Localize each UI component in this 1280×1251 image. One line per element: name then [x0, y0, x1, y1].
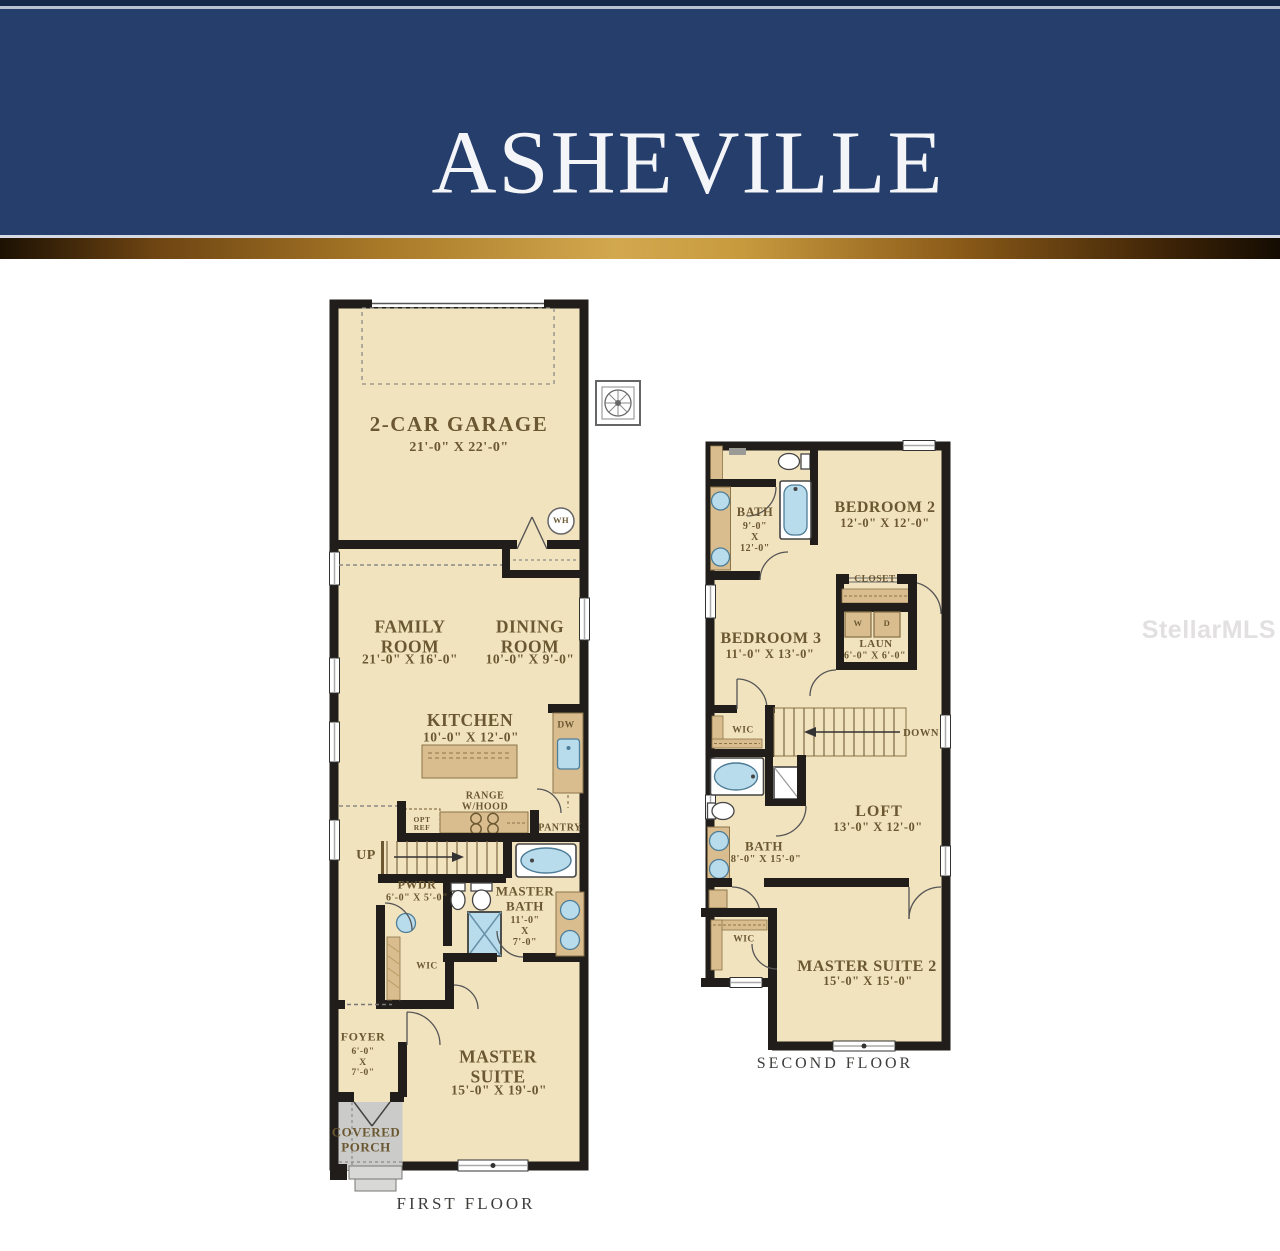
second-floor-caption: SECOND FLOOR	[757, 1055, 913, 1073]
garage-name: 2-CAR GARAGE	[370, 413, 548, 437]
wic-label: WIC	[416, 962, 438, 973]
wic2-label: WIC	[733, 935, 755, 946]
foyer-dims: 6'-0" X 7'-0"	[351, 1047, 374, 1079]
washer-label: W	[854, 619, 863, 629]
laundry-dims: 6'-0" X 6'-0"	[844, 650, 906, 661]
powder-sink-icon	[397, 914, 416, 933]
pantry-label: PANTRY	[538, 822, 582, 833]
kitchen-island	[422, 745, 517, 778]
loft-name: LOFT	[855, 803, 903, 821]
bath2-dims: 8'-0" X 15'-0"	[731, 854, 802, 866]
toilet-icon	[779, 454, 811, 470]
dryer-label: D	[884, 619, 891, 629]
master-suite2-dims: 15'-0" X 15'-0"	[823, 974, 912, 988]
first-floor-caption: FIRST FLOOR	[397, 1194, 536, 1214]
kitchen-sink-icon	[558, 739, 580, 769]
dining-room-dims: 10'-0" X 9'-0"	[486, 651, 575, 666]
porch-name: COVERED PORCH	[332, 1125, 401, 1154]
bedroom3-name: BEDROOM 3	[721, 630, 822, 648]
floor-plan-drawing	[0, 0, 1280, 1251]
foyer-name: FOYER	[341, 1030, 386, 1043]
up-label: UP	[356, 848, 376, 864]
bathtub-icon	[516, 844, 576, 877]
laundry-name: LAUN	[859, 638, 892, 650]
bathtub-icon	[780, 481, 811, 539]
master-suite-dims: 15'-0" X 19'-0"	[451, 1082, 547, 1097]
master-suite-name: MASTER SUITE	[459, 1047, 537, 1086]
closet-shelf	[387, 937, 400, 1000]
bathtub-icon	[711, 758, 764, 795]
kitchen-name: KITCHEN	[427, 711, 513, 731]
wic-hall-label: WIC	[732, 726, 754, 737]
sink-icon	[712, 548, 730, 566]
porch-step	[355, 1179, 396, 1191]
closet-label: CLOSET	[854, 575, 896, 586]
down-label: DOWN	[903, 728, 939, 740]
family-room-dims: 21'-0" X 16'-0"	[362, 651, 458, 666]
mls-watermark: StellarMLS	[1142, 616, 1276, 645]
master-bath-dims: 11'-0" X 7'-0"	[510, 915, 539, 949]
sink-icon	[710, 832, 729, 851]
master-bath-name: MASTER BATH	[496, 884, 555, 913]
kitchen-dims: 10'-0" X 12'-0"	[423, 729, 519, 744]
bath1-name: BATH	[737, 505, 774, 519]
shower-icon	[774, 767, 799, 799]
bedroom2-dims: 12'-0" X 12'-0"	[840, 516, 929, 530]
sink-icon	[561, 931, 580, 950]
water-heater-label: WH	[553, 516, 569, 526]
toilet-icon	[708, 803, 735, 820]
sink-icon	[710, 860, 729, 879]
shower-icon	[468, 912, 501, 956]
loft-dims: 13'-0" X 12'-0"	[833, 820, 922, 834]
ac-unit-icon	[596, 381, 640, 425]
bedroom2-name: BEDROOM 2	[835, 499, 936, 517]
range-label: RANGE W/HOOD	[462, 792, 508, 813]
powder-dims: 6'-0" X 5'-0"	[386, 892, 448, 903]
sink-icon	[712, 492, 730, 510]
garage-dims: 21'-0" X 22'-0"	[409, 440, 508, 456]
dishwasher-label: DW	[557, 721, 574, 732]
closet-shelf	[842, 589, 910, 603]
bath1-dims: 9'-0" X 12'-0"	[740, 521, 770, 555]
sink-icon	[561, 901, 580, 920]
porch-step	[349, 1166, 402, 1179]
bath2-name: BATH	[745, 840, 783, 855]
floor-plan-page: ASHEVILLE	[0, 0, 1280, 1251]
bedroom3-dims: 11'-0" X 13'-0"	[726, 647, 815, 661]
opt-ref-label: OPT REF	[414, 816, 431, 832]
powder-name: PWDR	[398, 878, 437, 891]
